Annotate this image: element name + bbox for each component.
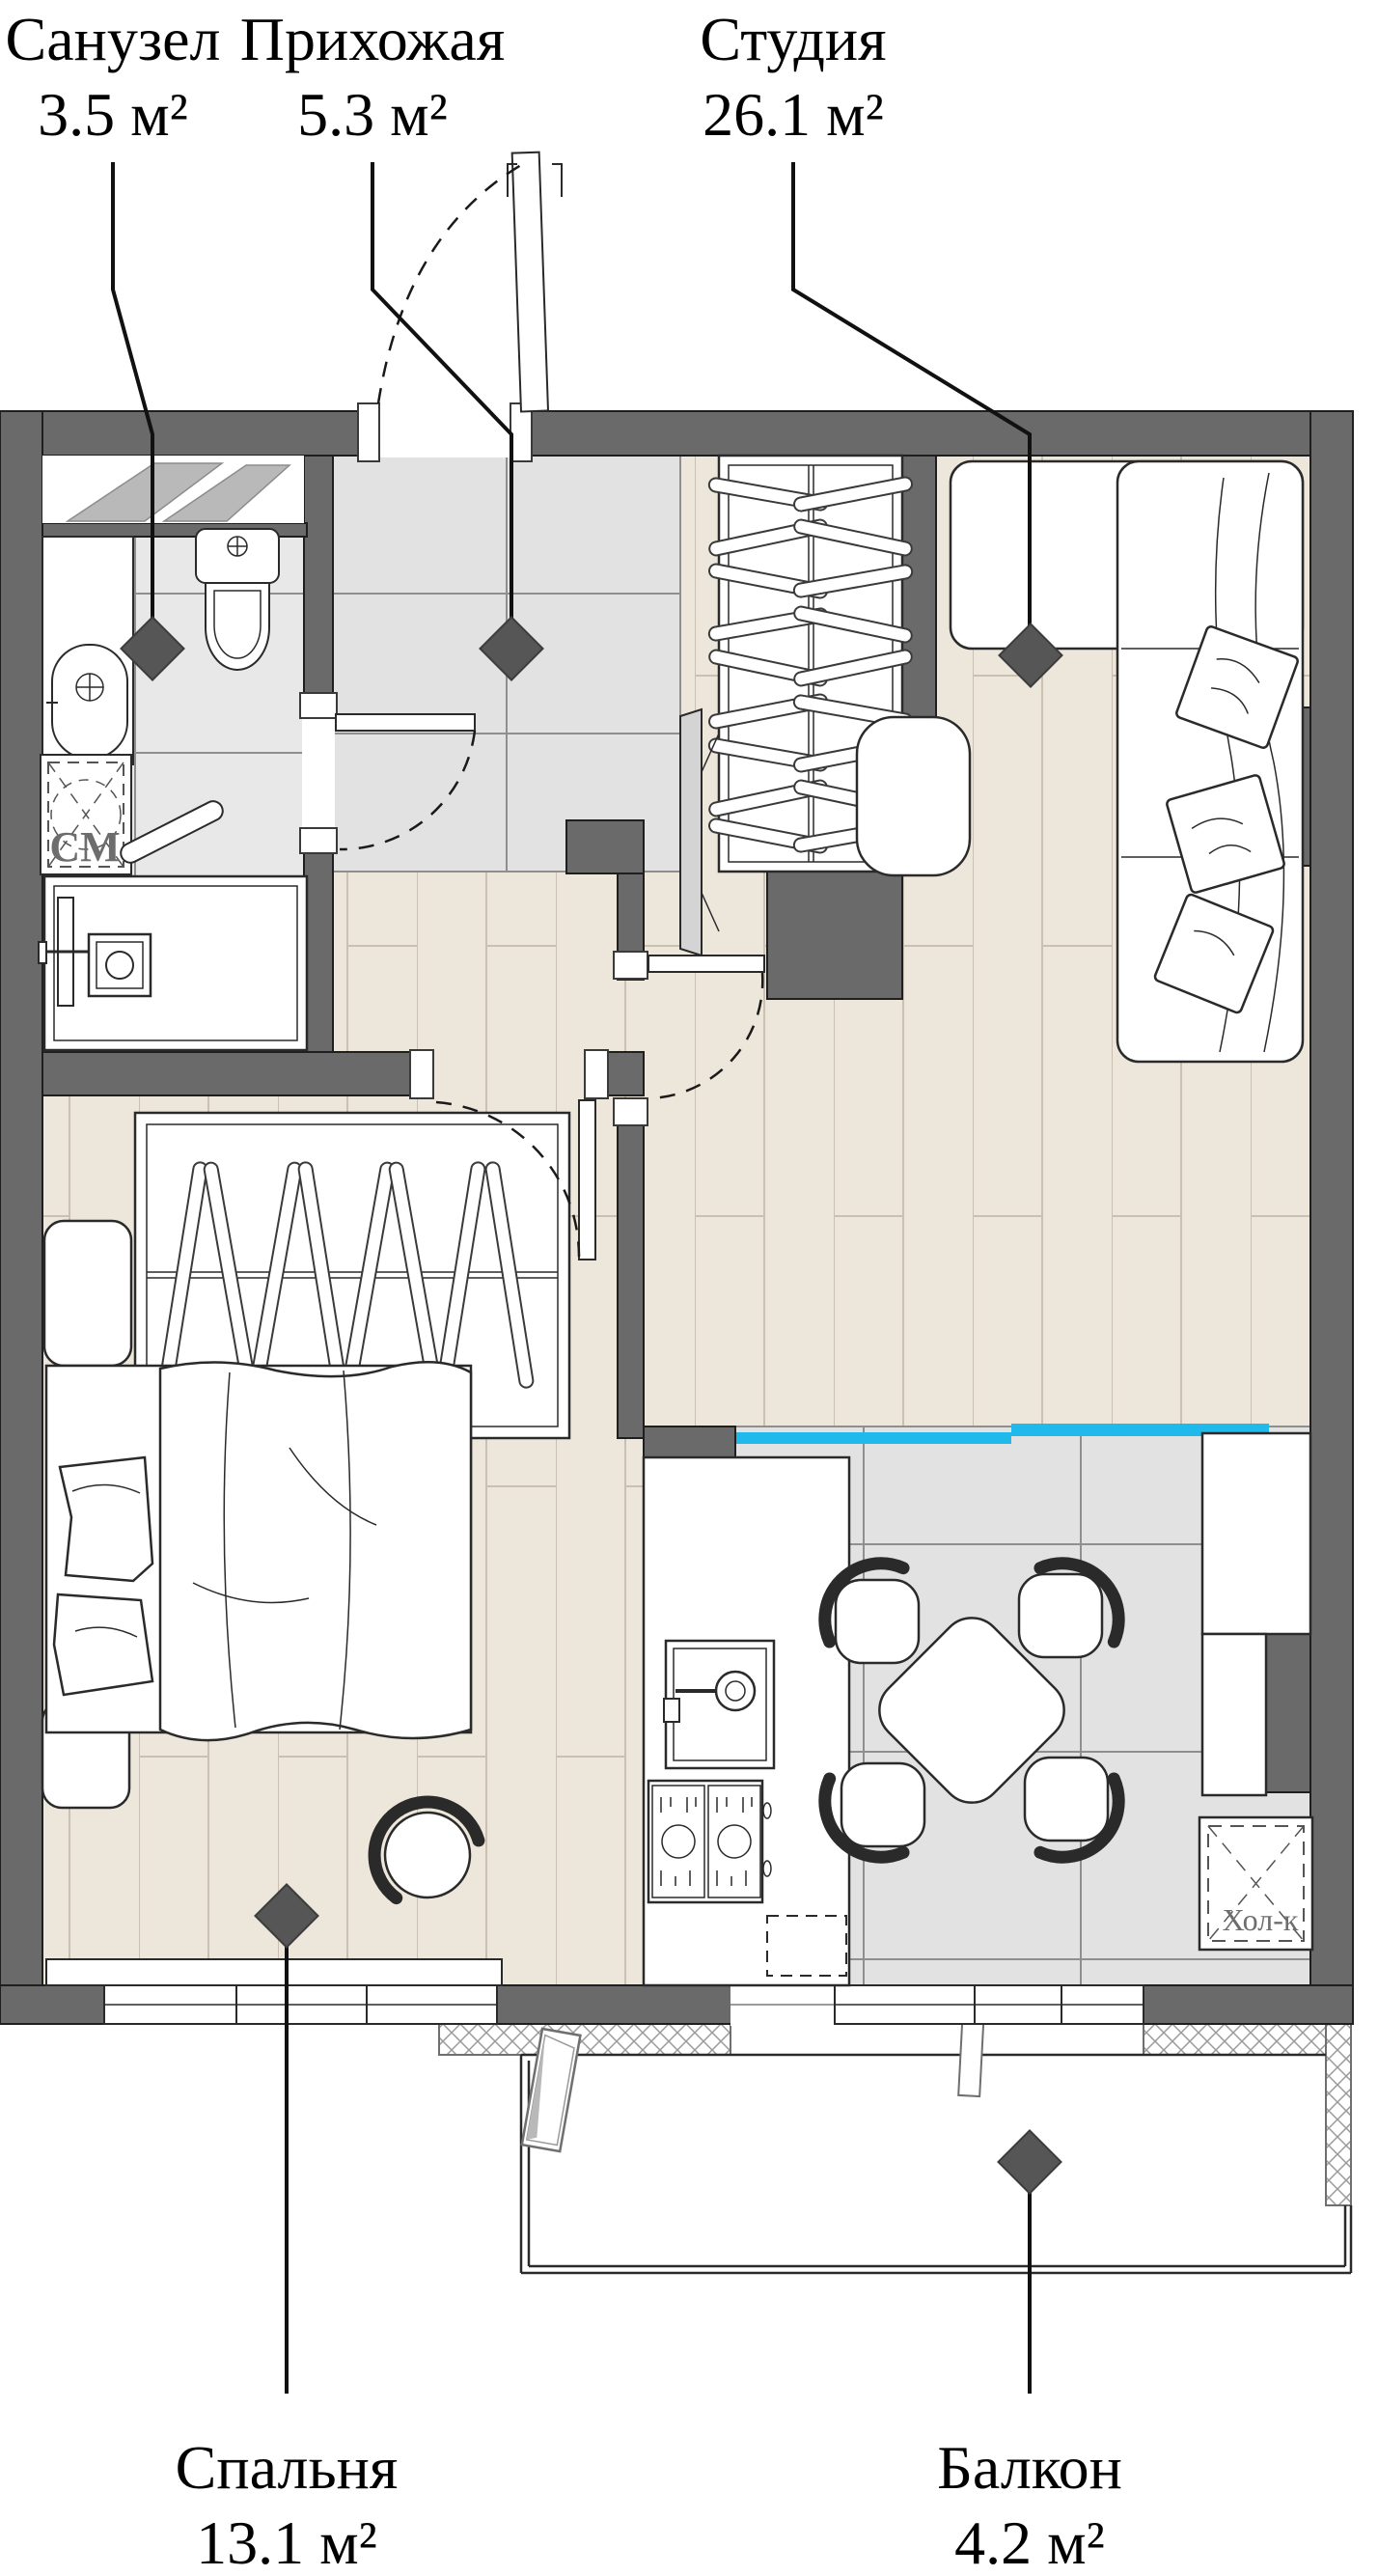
balcony-threshold-hatch: [439, 2024, 730, 2055]
bed: [46, 1362, 471, 1740]
balcony-threshold-hatch-right: [1144, 2024, 1351, 2055]
nightstand-1: [44, 1221, 131, 1366]
balcony-railing: [521, 2055, 1351, 2273]
towel-shelf: [42, 456, 304, 523]
balcony-side-hatch: [1326, 2024, 1351, 2205]
wall-right: [1310, 411, 1353, 2024]
bedroom-door-jamb-left: [410, 1050, 433, 1098]
label-studio-area: 26.1 м²: [703, 80, 884, 149]
diamond-marker-icon-balcony: [998, 2130, 1061, 2193]
bathroom-door-jamb-top: [300, 693, 337, 718]
bedroom-window-sill: [46, 1959, 502, 1985]
label-bathroom-name: Санузел: [6, 5, 221, 73]
floor-plan: Хол-к Санузел 3.5 м² Прихожая 5.3 м² Сту…: [0, 0, 1378, 2576]
bedroom-door-jamb-right: [585, 1050, 608, 1098]
bathroom-sink-icon: [42, 537, 133, 764]
label-balcony-area: 4.2 м²: [954, 2508, 1105, 2576]
bed-pillow-2: [54, 1594, 152, 1695]
wall-tv-section: [767, 872, 902, 999]
bed-pillow-1: [60, 1457, 152, 1581]
floor-plan-page: Хол-к Санузел 3.5 м² Прихожая 5.3 м² Сту…: [0, 0, 1378, 2576]
wall-top: [0, 411, 1353, 456]
wall-corridor-lower: [618, 1100, 644, 1438]
label-bedroom-name: Спальня: [176, 2433, 399, 2502]
bed-blanket: [160, 1362, 471, 1740]
label-bathroom-area: 3.5 м²: [38, 80, 188, 149]
label-hallway-name: Прихожая: [240, 5, 506, 73]
wall-left: [0, 411, 42, 2024]
stove-icon: [648, 1781, 771, 1902]
label-hallway-area: 5.3 м²: [297, 80, 448, 149]
bathroom-door-jamb-bottom: [300, 828, 337, 853]
label-studio-name: Студия: [700, 5, 886, 73]
washing-machine-label: СМ: [49, 823, 120, 871]
label-bedroom-area: 13.1 м²: [196, 2508, 377, 2576]
studio-door-jamb-top: [614, 952, 648, 979]
kitchen-window: [835, 1985, 1144, 2024]
fridge-icon: Хол-к: [1199, 1817, 1312, 1950]
wall-kitchen-cap: [644, 1426, 735, 1457]
coffee-table: [857, 717, 970, 875]
shower-icon: [39, 876, 307, 1050]
wall-hall-stub: [566, 820, 644, 873]
entry-door: [378, 152, 562, 412]
fridge-label: Хол-к: [1223, 1902, 1299, 1937]
balcony: [439, 2007, 1351, 2273]
bedroom-window: [46, 1959, 502, 2024]
studio-door-jamb-bottom: [614, 1098, 648, 1125]
entry-jamb-left: [358, 403, 379, 461]
wall-bedroom-top-left: [42, 1052, 431, 1095]
kitchen-sink-icon: [664, 1641, 774, 1768]
kitchen-counter-left: [644, 1457, 849, 1985]
entry-opening: [362, 409, 526, 457]
label-balcony-name: Балкон: [937, 2433, 1122, 2502]
wall-pilaster-kitchen: [1266, 1634, 1310, 1792]
